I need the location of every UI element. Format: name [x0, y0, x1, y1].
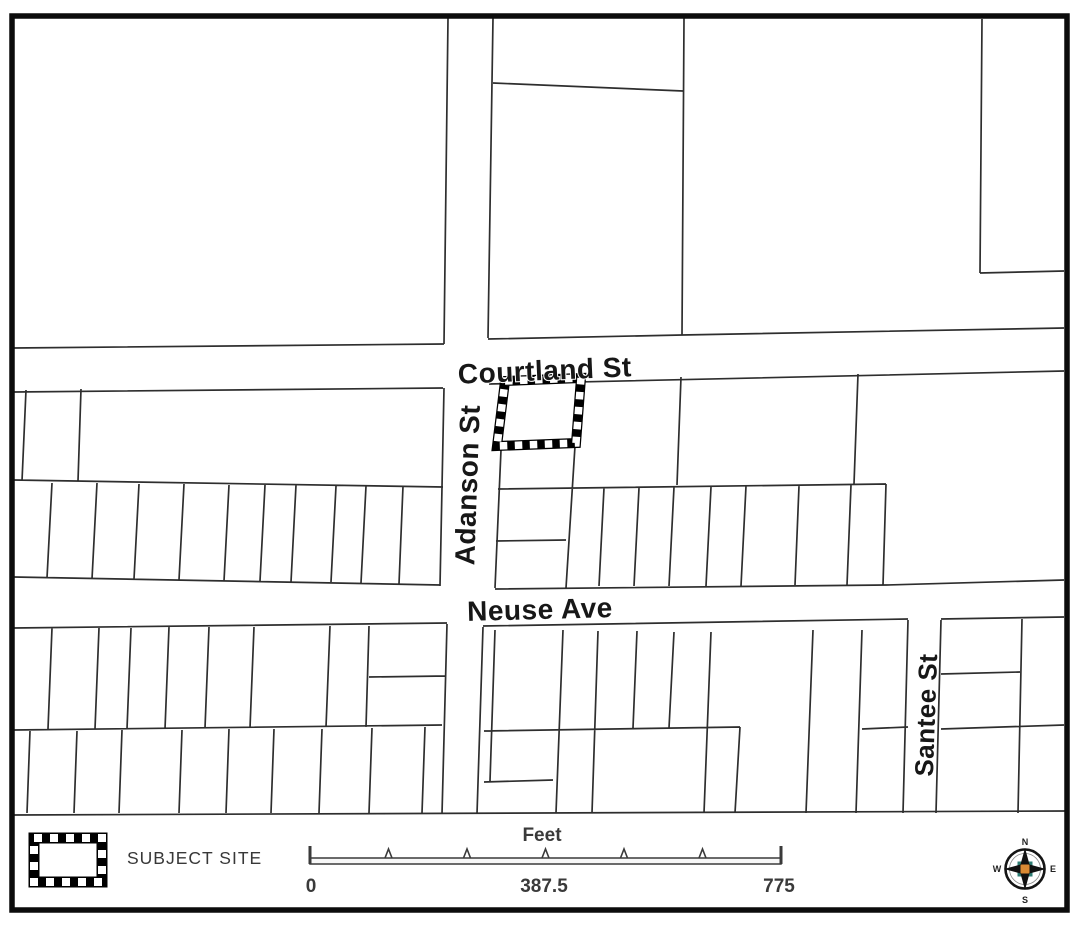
mid-left-block-lines [14, 388, 444, 586]
subject-site-marker [497, 378, 581, 446]
street-courtland-label: Courtland St [457, 351, 632, 390]
legend: SUBJECT SITE [34, 838, 262, 882]
legend-swatch-band [34, 838, 102, 882]
bottom-left-block-lines [14, 623, 483, 814]
compass-north-label: N [1022, 837, 1029, 847]
legend-subject-site-swatch [34, 838, 102, 882]
scale-bar-mid-label: 387.5 [520, 876, 568, 897]
compass-south-label: S [1022, 895, 1028, 905]
parcel-map: Courtland St Adanson St Neuse Ave Santee… [0, 0, 1080, 927]
subject-site-band [497, 378, 581, 446]
bottom-mid-block-lines [483, 619, 908, 813]
street-santee-label: Santee St [909, 653, 943, 777]
legend-subject-site-label: SUBJECT SITE [127, 848, 262, 868]
compass-east-label: E [1050, 864, 1056, 874]
street-adanson-label: Adanson St [449, 404, 486, 566]
scale-bar-title: Feet [522, 825, 562, 846]
scale-bar-ticks [385, 849, 706, 858]
scale-bar-max-label: 775 [763, 876, 795, 897]
scale-bar: Feet 0 387.5 775 [306, 825, 796, 897]
compass-center [1021, 865, 1030, 874]
scale-bar-min-label: 0 [306, 876, 317, 897]
compass-west-label: W [993, 864, 1002, 874]
top-block-lines [444, 18, 1064, 344]
legend-separator-line [14, 811, 1066, 815]
compass-rose: N E S W [993, 837, 1056, 905]
scale-bar-rule [310, 858, 781, 864]
plat-map-page: Courtland St Adanson St Neuse Ave Santee… [0, 0, 1080, 927]
street-neuse-label: Neuse Ave [467, 592, 613, 627]
